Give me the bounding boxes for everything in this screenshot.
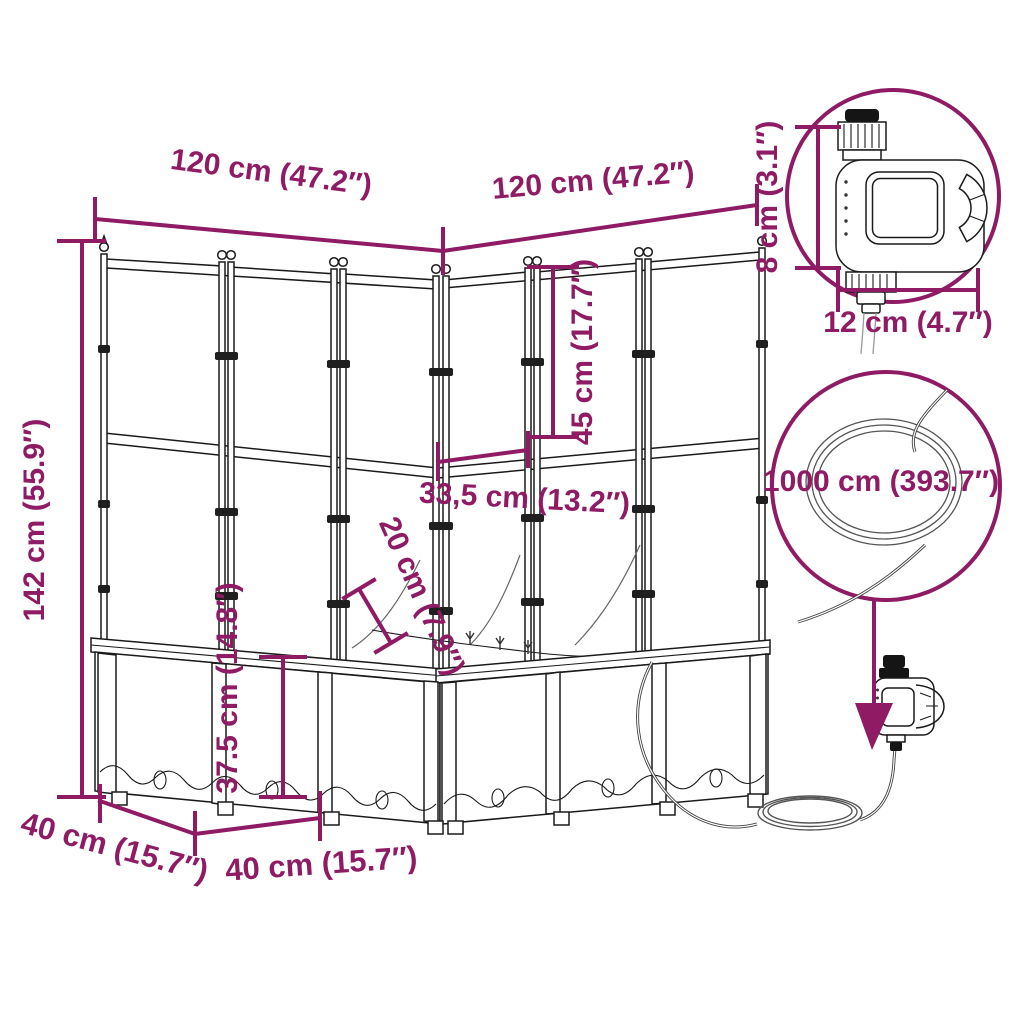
dim-inner-width-label: 33,5 cm (13.2″) (418, 477, 631, 521)
planter-boxes (91, 631, 770, 834)
dim-planter-height-label: 37.5 cm (14.8″) (211, 582, 244, 793)
dim-timer-width-label: 12 cm (4.7″) (823, 306, 992, 339)
dim-timer-height-line (797, 127, 839, 268)
dim-inner-gap-line (344, 580, 406, 652)
dim-trellis-height-label: 45 cm (17.7″) (566, 259, 599, 445)
dim-hose-length-label: 1000 cm (393.7″) (763, 465, 999, 498)
dim-depth-front-label: 40 cm (15.7″) (224, 839, 418, 887)
dim-width-left-label: 120 cm (47.2″) (169, 143, 374, 202)
dim-total-height-label: 142 cm (55.9″) (18, 419, 51, 622)
dim-depth-left-label: 40 cm (15.7″) (17, 805, 212, 889)
dim-timer-height-label: 8 cm (3.1″) (751, 121, 784, 274)
product-dimension-diagram: 120 cm (47.2″) 120 cm (47.2″) 142 cm (55… (0, 0, 1024, 1024)
dim-width-right-label: 120 cm (47.2″) (491, 155, 696, 206)
dim-inner-gap-label: 20 cm (7.9″) (372, 512, 471, 680)
hose-coil (758, 796, 862, 830)
diagram-canvas: 120 cm (47.2″) 120 cm (47.2″) 142 cm (55… (0, 0, 1024, 1024)
